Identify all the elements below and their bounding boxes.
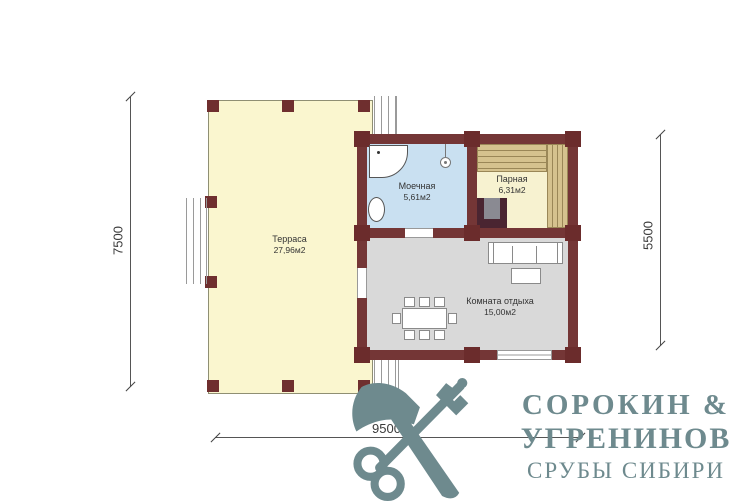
shower-head-line bbox=[445, 144, 446, 157]
chair bbox=[404, 330, 415, 340]
log-post bbox=[565, 347, 581, 363]
shower-head-dot bbox=[444, 161, 447, 164]
steps-top bbox=[374, 96, 397, 134]
lounge-label: Комната отдыха 15,00м2 bbox=[400, 296, 600, 318]
coffee-table bbox=[511, 268, 541, 284]
room-name: Моечная bbox=[367, 181, 467, 192]
room-name: Парная bbox=[477, 174, 547, 185]
room-area: 27,96м2 bbox=[208, 245, 371, 256]
log-post bbox=[464, 131, 480, 147]
sofa-divider bbox=[512, 246, 513, 263]
window-lounge-south bbox=[497, 350, 552, 360]
sofa-armrest bbox=[493, 243, 494, 263]
log-post bbox=[464, 347, 480, 363]
axe-and-key-icon bbox=[346, 371, 514, 502]
stove-firebox bbox=[484, 198, 500, 219]
sofa-armrest bbox=[557, 243, 558, 263]
shower-drain-dot bbox=[377, 151, 380, 154]
door-terrace-to-lounge bbox=[357, 268, 367, 298]
logo-line2: УГРЕНИНОВ bbox=[505, 422, 747, 456]
log-post bbox=[354, 347, 370, 363]
dimension-line-right bbox=[660, 135, 661, 346]
washroom-label: Моечная 5,61м2 bbox=[367, 181, 467, 203]
sauna-bench-right bbox=[547, 144, 568, 228]
log-post bbox=[464, 225, 480, 241]
door-washroom-to-lounge bbox=[405, 228, 433, 238]
log-post bbox=[565, 225, 581, 241]
terrace-post bbox=[282, 380, 294, 392]
logo-line1: СОРОКИН & bbox=[505, 389, 747, 422]
room-area: 15,00м2 bbox=[400, 307, 600, 318]
floor-plan-canvas: 7500 5500 9500 Терраса 27,96м2 bbox=[0, 0, 753, 502]
dimension-label-right: 5500 bbox=[641, 216, 656, 256]
logo-line3: СРУБЫ СИБИРИ bbox=[505, 456, 747, 485]
log-post bbox=[565, 131, 581, 147]
room-area: 5,61м2 bbox=[367, 192, 467, 203]
sofa bbox=[488, 242, 563, 264]
room-area: 6,31м2 bbox=[477, 185, 547, 196]
log-post bbox=[354, 131, 370, 147]
room-name: Терраса bbox=[208, 234, 371, 245]
steam-room-label: Парная 6,31м2 bbox=[477, 174, 547, 196]
terrace-label: Терраса 27,96м2 bbox=[208, 234, 371, 256]
dimension-label-left: 7500 bbox=[111, 221, 126, 261]
dimension-line-left bbox=[130, 97, 131, 387]
chair bbox=[434, 330, 445, 340]
log-post bbox=[354, 225, 370, 241]
logo-text: СОРОКИН & УГРЕНИНОВ СРУБЫ СИБИРИ bbox=[505, 389, 747, 485]
sauna-bench-top bbox=[477, 144, 547, 172]
wall-right bbox=[568, 134, 578, 360]
steps-left bbox=[186, 198, 207, 284]
terrace-post bbox=[358, 100, 370, 112]
terrace-post bbox=[282, 100, 294, 112]
chair bbox=[419, 330, 430, 340]
wall-middle-vertical bbox=[467, 134, 477, 238]
room-name: Комната отдыха bbox=[400, 296, 600, 307]
terrace-post bbox=[207, 380, 219, 392]
sofa-divider bbox=[536, 246, 537, 263]
wall-left bbox=[357, 134, 367, 360]
terrace-post bbox=[207, 100, 219, 112]
